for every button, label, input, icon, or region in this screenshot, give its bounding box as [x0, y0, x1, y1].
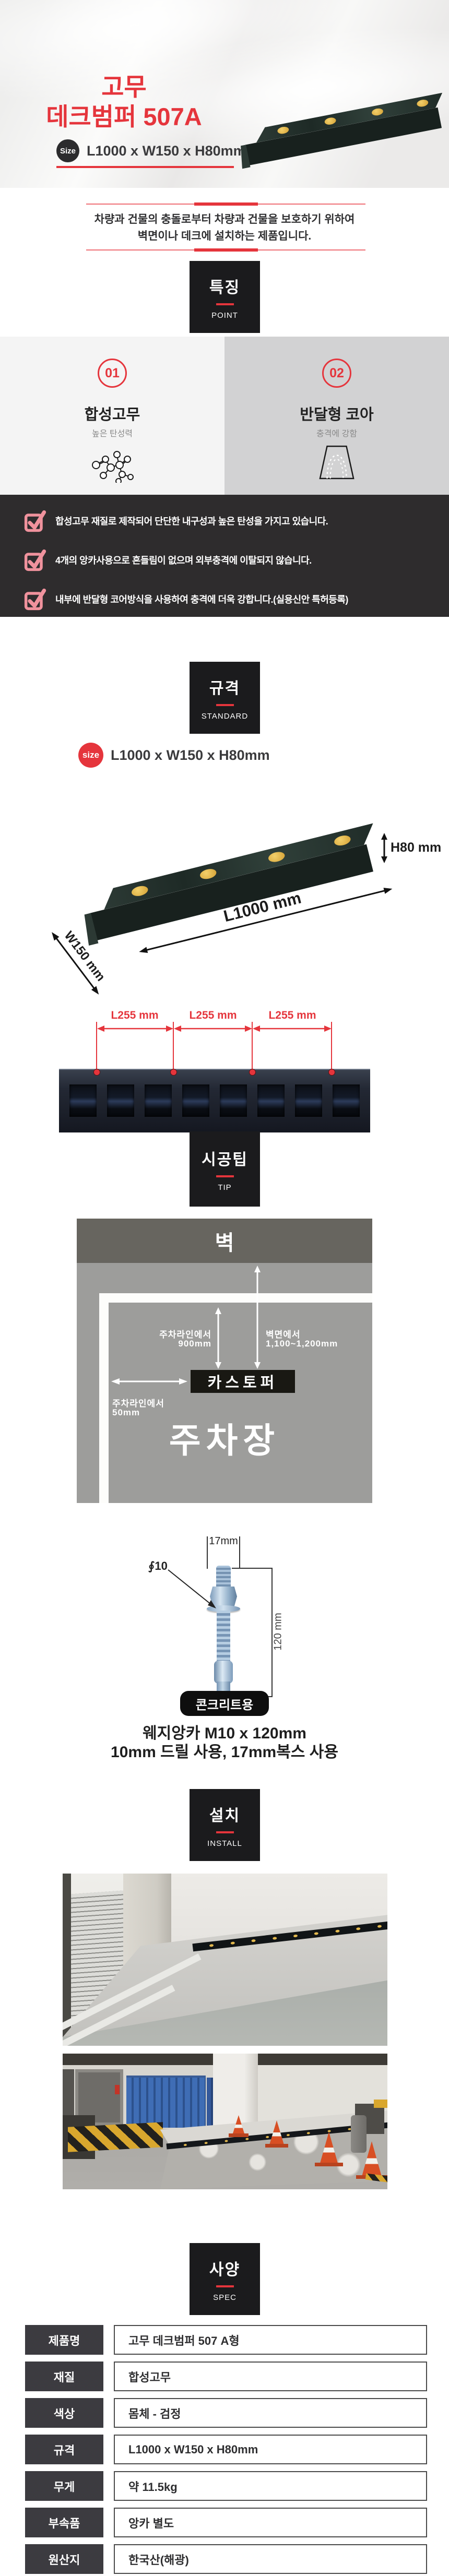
anchor-line [252, 1022, 253, 1072]
parking-line-horizontal [99, 1293, 372, 1303]
concrete-badge: 콘크리트용 [180, 1691, 269, 1716]
hero-size-row: Size L1000 x W150 x H80mm [56, 139, 246, 163]
checkbox-icon [24, 548, 47, 571]
point-subtitle: 충격에 강함 [224, 426, 449, 439]
checkbox-icon [24, 588, 47, 611]
standard-size-value: L1000 x W150 x H80mm [111, 747, 270, 764]
parking-lot-label: 주차장 [77, 1413, 372, 1463]
spec-row-label: 무게 [25, 2471, 103, 2501]
bottom-view-photo [59, 1069, 370, 1132]
size-value: L1000 x W150 x H80mm [87, 143, 246, 159]
molecule-icon [0, 444, 224, 483]
standard-size-row: size L1000 x W150 x H80mm [78, 743, 270, 767]
spacing-label: L255 mm [256, 1009, 329, 1022]
checklist-item: 합성고무 재질로 제작되어 단단한 내구성과 높은 탄성을 가지고 있습니다. [24, 508, 328, 533]
tip-subtitle: TIP [218, 1183, 231, 1192]
red-dash [216, 704, 234, 706]
product-title-line2: 데크범퍼 507A [0, 102, 248, 132]
red-underline [56, 166, 234, 168]
spec-row-label: 제품명 [25, 2325, 103, 2355]
red-dash [216, 1831, 234, 1833]
spacing-arrow-icon [253, 1025, 332, 1032]
intro-line1: 차량과 건물의 충돌로부터 차량과 건물을 보호하기 위하여 [0, 211, 449, 226]
anchor-diameter-label: ∮10 [148, 1559, 168, 1573]
spec-row-value: 고무 데크범퍼 507 A형 [114, 2325, 427, 2355]
half-core-icon [224, 444, 449, 481]
checklist-text: 합성고무 재질로 제작되어 단단한 내구성과 높은 탄성을 가지고 있습니다. [55, 514, 328, 528]
dim-line [239, 1536, 240, 1569]
anchor-line [96, 1022, 97, 1072]
spec-row-label: 부속품 [25, 2508, 103, 2537]
spec-row-label: 규격 [25, 2435, 103, 2464]
spacing-arrow-icon [97, 1025, 173, 1032]
point-number-badge: 02 [322, 359, 351, 388]
spec-row-value: 앙카 별도 [114, 2508, 427, 2537]
product-title-line1: 고무 [0, 72, 248, 102]
divider-top-thick [194, 202, 258, 206]
dim-height-label: H80 mm [391, 840, 441, 855]
size-badge-red: size [78, 743, 103, 768]
anchor-line [331, 1022, 332, 1072]
checklist-item: 내부에 반달형 코어방식을 사용하여 충격에 더욱 강합니다.(실용신안 특허등… [24, 587, 348, 612]
point-title: 반달형 코아 [224, 402, 449, 424]
leader-line-icon [166, 1567, 218, 1611]
tip-title: 시공팁 [202, 1147, 248, 1170]
features-subtitle: POINT [211, 311, 238, 320]
feature-point-1: 01 합성고무 높은 탄성력 [0, 337, 224, 495]
car-stopper-label: 카스토퍼 [191, 1370, 295, 1393]
spec-subtitle: SPEC [213, 2293, 237, 2302]
dim-50-arrow-icon [111, 1377, 187, 1386]
bolt-wedge-clip [214, 1661, 233, 1684]
point-number-badge: 01 [98, 359, 127, 388]
traffic-cone [317, 2132, 340, 2164]
feature-point-2: 02 반달형 코아 충격에 강함 [224, 337, 449, 495]
installation-diagram: 벽 주차라인에서 900mm 벽면에서 1,100~1,200mm 카스토퍼 주… [77, 1219, 372, 1503]
product-detail-page: 고무 데크범퍼 507A Size L1000 x W150 x H80mm 차… [0, 0, 449, 2576]
anchor-length-label: 120 mm [273, 1608, 285, 1655]
parking-line-vertical [99, 1293, 109, 1503]
spec-row-label: 색상 [25, 2398, 103, 2428]
checklist-text: 4개의 앙카사용으로 흔들림이 없으며 외부충격에 이탈되지 않습니다. [55, 553, 312, 567]
checklist-text: 내부에 반달형 코어방식을 사용하여 충격에 더욱 강합니다.(실용신안 특허등… [55, 592, 348, 606]
product-title: 고무 데크범퍼 507A [0, 72, 248, 132]
intro-line2: 벽면이나 데크에 설치하는 제품입니다. [0, 228, 449, 243]
spacing-label: L255 mm [98, 1009, 171, 1022]
divider-bottom-thick [194, 248, 258, 252]
checklist-section: 합성고무 재질로 제작되어 단단한 내구성과 높은 탄성을 가지고 있습니다. … [0, 495, 449, 617]
spec-row-value: 약 11.5kg [114, 2471, 427, 2501]
install-subtitle: INSTALL [207, 1839, 242, 1848]
feature-points: 01 합성고무 높은 탄성력 [0, 337, 449, 495]
spec-title: 사양 [209, 2257, 240, 2280]
traffic-cone [267, 2120, 286, 2145]
install-photo-2 [63, 2054, 387, 2189]
checkbox-icon [24, 509, 47, 532]
features-title: 특징 [209, 275, 240, 297]
point-title: 합성고무 [0, 402, 224, 424]
dim-tick [232, 1568, 273, 1569]
dim-1100-value: 1,100~1,200mm [266, 1339, 338, 1349]
dim-1100-arrow-icon [253, 1266, 262, 1369]
cage-cart [126, 2076, 206, 2128]
spec-row-value: L1000 x W150 x H80mm [114, 2435, 427, 2464]
dim-900-value: 900mm [134, 1339, 211, 1349]
spacing-arrow-icon [174, 1025, 252, 1032]
red-dash [216, 1175, 234, 1177]
bolt-thread-top [216, 1566, 231, 1588]
traffic-cone [359, 2141, 384, 2177]
equipment-yellow [374, 2100, 387, 2108]
spec-row-value: 한국산(해광) [114, 2544, 427, 2574]
spec-row-label: 원산지 [25, 2544, 103, 2574]
hazard-ramp [68, 2122, 163, 2152]
fire-extinguisher [115, 2085, 120, 2094]
dim-900-arrow-icon [214, 1307, 222, 1369]
anchor-dot [170, 1069, 177, 1076]
anchor-caption-line2: 10mm 드릴 사용, 17mm복스 사용 [0, 1739, 449, 1762]
checklist-item: 4개의 앙카사용으로 흔들림이 없으며 외부충격에 이탈되지 않습니다. [24, 547, 312, 573]
anchor-dot [93, 1069, 100, 1076]
standard-subtitle: STANDARD [202, 712, 248, 721]
install-photo-1 [63, 1874, 387, 2046]
install-title: 설치 [209, 1803, 240, 1826]
h80-arrow-icon [380, 833, 388, 863]
red-dash [216, 2285, 234, 2287]
anchor-dot [328, 1069, 335, 1076]
point-subtitle: 높은 탄성력 [0, 426, 224, 439]
size-badge: Size [56, 139, 79, 162]
section-header-spec: 사양 SPEC [190, 2243, 260, 2315]
spec-row-value: 합성고무 [114, 2362, 427, 2391]
spacing-label: L255 mm [176, 1009, 250, 1022]
dim-line [207, 1536, 208, 1569]
section-header-standard: 규격 STANDARD [190, 662, 260, 734]
hero-section: 고무 데크범퍼 507A Size L1000 x W150 x H80mm [0, 0, 449, 188]
red-dash [216, 303, 234, 305]
anchor-dot [249, 1069, 256, 1076]
standard-title: 규격 [209, 675, 240, 698]
spec-row-value: 몸체 - 검정 [114, 2398, 427, 2428]
wall-label: 벽 [77, 1219, 372, 1263]
traffic-cone [231, 2115, 246, 2135]
spec-row-label: 재질 [25, 2362, 103, 2391]
section-header-features: 특징 POINT [190, 261, 260, 333]
section-header-install: 설치 INSTALL [190, 1789, 260, 1861]
anchor-line [173, 1022, 174, 1072]
section-header-tip: 시공팁 TIP [190, 1131, 260, 1207]
dimension-figure: H80 mm L1000 mm W150 mm [0, 793, 449, 1007]
